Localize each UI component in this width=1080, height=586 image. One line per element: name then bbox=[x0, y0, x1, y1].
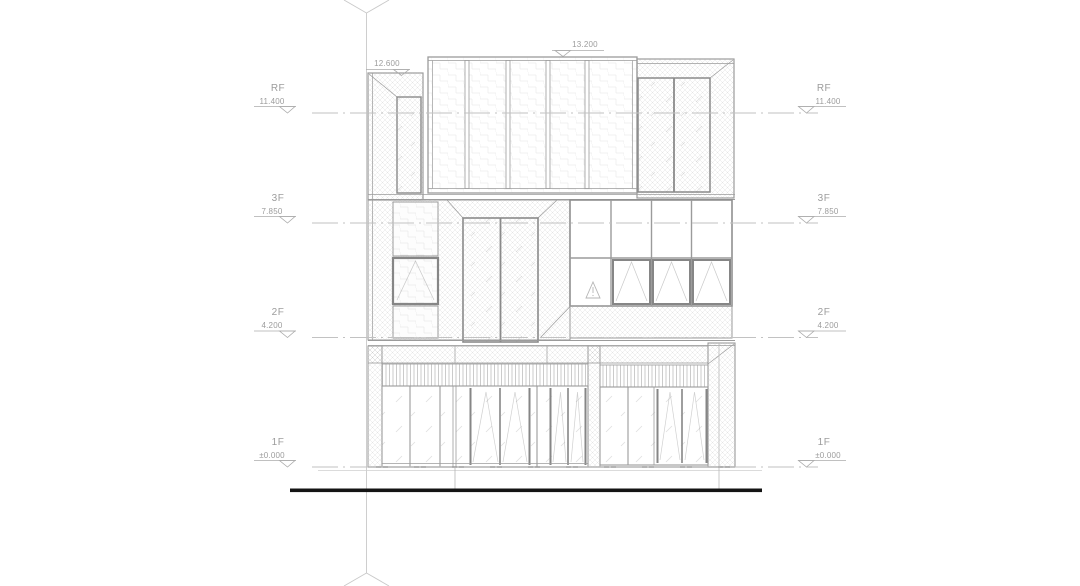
parapet-dimension-left: 12.600 bbox=[366, 60, 408, 68]
level-label-2f-right: 2F bbox=[806, 308, 842, 318]
elevation-value-rf-left: 11.400 bbox=[248, 98, 296, 106]
building bbox=[318, 57, 762, 491]
tower-window bbox=[397, 97, 421, 193]
grid-axis-marker-top bbox=[344, 0, 389, 13]
pier-middle bbox=[588, 346, 600, 467]
elevation-value-2f-right: 4.200 bbox=[804, 322, 852, 330]
level-marker-3f-right bbox=[798, 217, 846, 224]
level-marker-1f-right bbox=[798, 461, 846, 468]
parapet-dimension-center: 13.200 bbox=[562, 41, 608, 49]
top-left-tower bbox=[368, 73, 423, 200]
top-right-block bbox=[637, 59, 734, 198]
elevation-value-3f-left: 7.850 bbox=[248, 208, 296, 216]
level-marker-3f-left bbox=[254, 217, 296, 224]
dim-marker-13200 bbox=[552, 51, 604, 57]
elevation-value-rf-right: 11.400 bbox=[804, 98, 852, 106]
level-label-2f-left: 2F bbox=[260, 308, 296, 318]
level-label-1f-right: 1F bbox=[806, 438, 842, 448]
level-marker-rf-left bbox=[254, 107, 296, 114]
level-marker-1f-left bbox=[254, 461, 296, 468]
elevation-sheet: RF 11.400 3F 7.850 2F 4.200 1F ±0.000 RF… bbox=[0, 0, 1080, 586]
ground-line bbox=[290, 489, 762, 493]
storefront-right bbox=[600, 387, 708, 465]
level-label-rf-right: RF bbox=[806, 84, 842, 94]
level-label-3f-left: 3F bbox=[260, 194, 296, 204]
signage-louver-band-left bbox=[382, 364, 588, 386]
level-marker-2f-left bbox=[254, 331, 296, 338]
elevation-value-1f-right: ±0.000 bbox=[804, 452, 852, 460]
level-label-3f-right: 3F bbox=[806, 194, 842, 204]
pier-right bbox=[708, 343, 735, 467]
level-label-rf-left: RF bbox=[260, 84, 296, 94]
grid-spandrel-hatch bbox=[570, 306, 732, 338]
elevation-value-2f-left: 4.200 bbox=[248, 322, 296, 330]
spandrel-band bbox=[368, 346, 708, 363]
elevation-drawing bbox=[0, 0, 1080, 586]
elevation-value-1f-left: ±0.000 bbox=[248, 452, 296, 460]
elevation-value-3f-right: 7.850 bbox=[804, 208, 852, 216]
level-marker-rf-right bbox=[798, 107, 846, 114]
top-center-block bbox=[428, 57, 637, 193]
mid-window-grid bbox=[570, 200, 732, 338]
mid-panel-strip bbox=[393, 202, 438, 338]
level-marker-2f-right bbox=[798, 331, 846, 338]
signage-louver-band-right bbox=[600, 365, 708, 387]
grid-axis-marker-bottom bbox=[344, 573, 389, 586]
level-label-1f-left: 1F bbox=[260, 438, 296, 448]
pier-left bbox=[368, 346, 382, 467]
storefront-left bbox=[382, 386, 588, 467]
